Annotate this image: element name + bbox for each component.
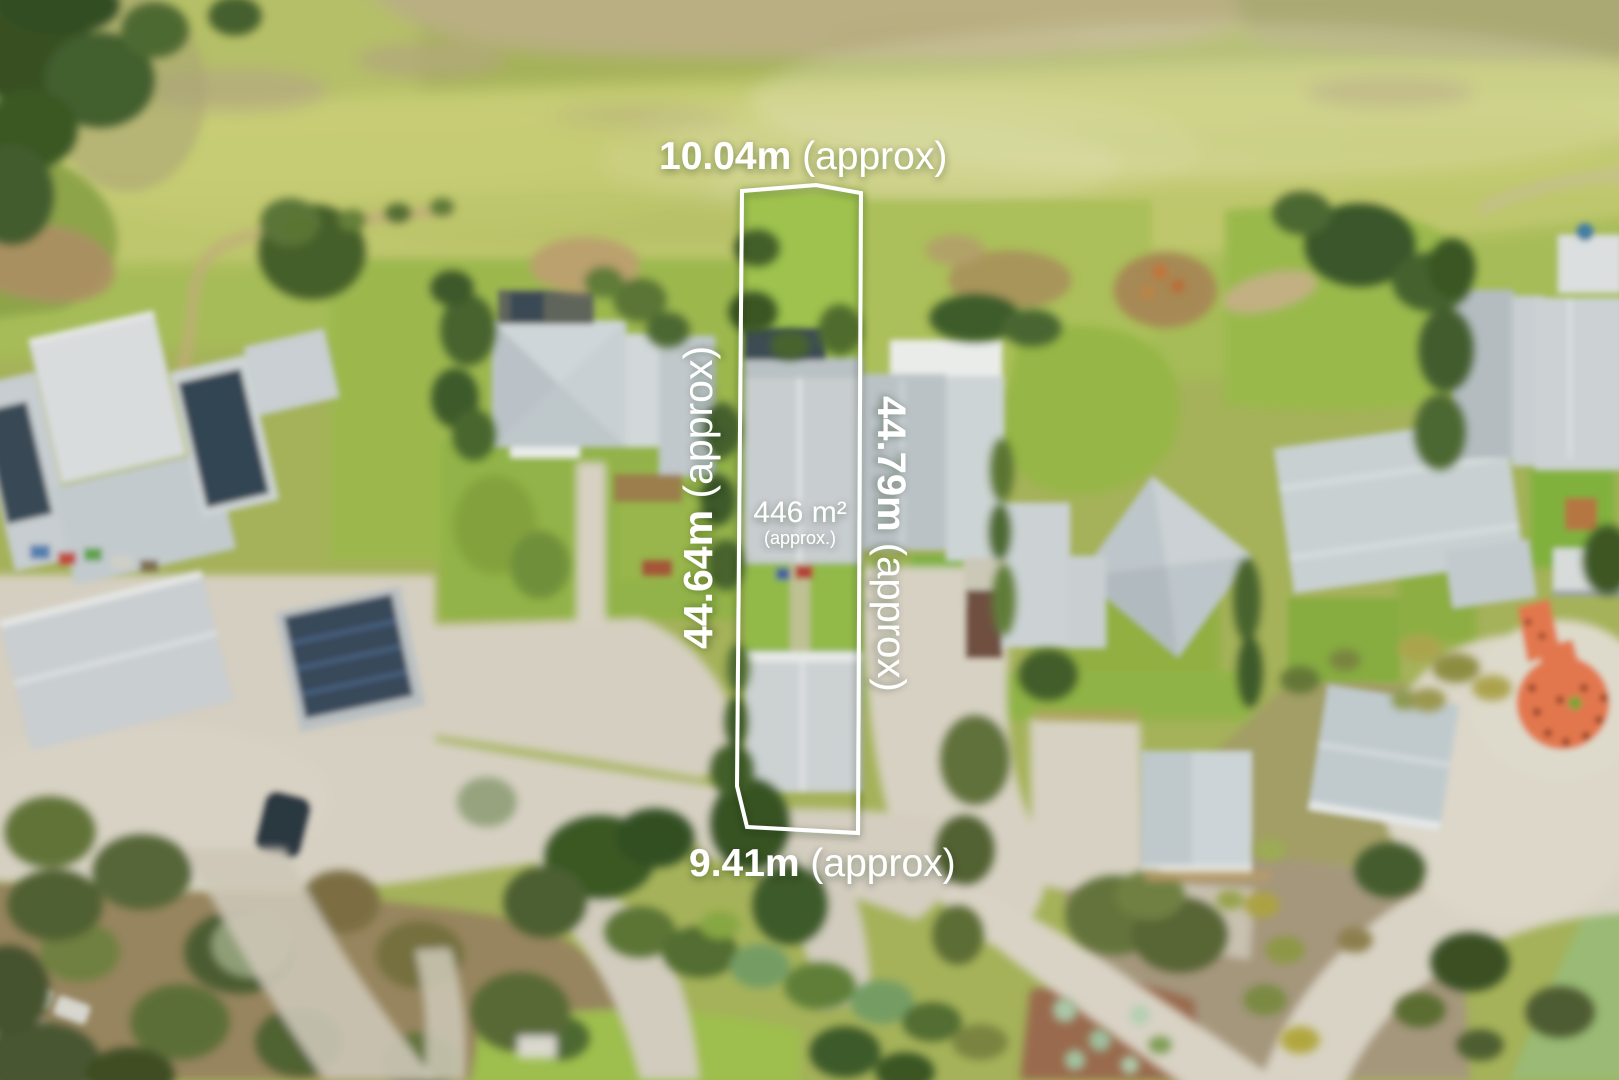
- svg-text:44.64m (approx): 44.64m (approx): [675, 346, 721, 649]
- svg-text:9.41m (approx): 9.41m (approx): [689, 842, 956, 885]
- svg-text:(approx.): (approx.): [764, 528, 836, 548]
- svg-text:44.79m (approx): 44.79m (approx): [869, 396, 913, 692]
- svg-text:10.04m (approx): 10.04m (approx): [659, 135, 947, 178]
- svg-text:446 m²: 446 m²: [753, 496, 846, 529]
